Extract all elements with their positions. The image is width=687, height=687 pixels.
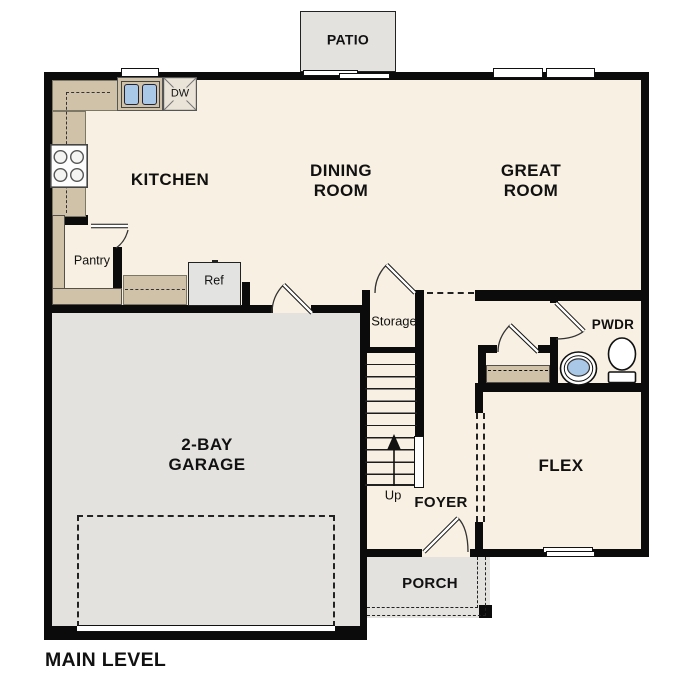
cased-opening-dash: [427, 292, 474, 294]
garage-door: [77, 625, 335, 632]
flex-opening-dash-2: [483, 413, 485, 522]
stairs-up-label: Up: [385, 487, 402, 502]
wall-bottom-south: [360, 549, 649, 557]
sink-basin-left: [124, 84, 139, 105]
room-label-dining-line2: ROOM: [310, 181, 372, 201]
wall-ref-stub: [242, 282, 250, 308]
room-label-dining-line1: DINING: [310, 161, 372, 181]
dishwasher-label: DW: [170, 88, 190, 101]
patio-slider-panel-2: [339, 73, 390, 79]
refrigerator-handle: [212, 260, 218, 263]
great-room-window-1: [493, 68, 543, 78]
room-label-garage-line2: GARAGE: [168, 455, 245, 475]
wall-kitchen-garage: [44, 305, 367, 313]
room-label-pantry: Pantry: [74, 254, 110, 269]
storage-door: [371, 251, 419, 295]
closet-door: [494, 318, 540, 354]
room-label-garage-line1: 2-BAY: [168, 435, 245, 455]
closet-shelf-dash: [488, 370, 548, 371]
stair-handrail: [414, 436, 424, 488]
wall-hall-top: [475, 290, 649, 301]
stairs-up-arrow-icon: [384, 434, 404, 488]
dropzone-counter: [123, 275, 187, 305]
great-room-window-2: [546, 68, 595, 78]
room-label-dining: DINING ROOM: [310, 161, 372, 201]
room-label-powder: PWDR: [592, 317, 634, 333]
room-label-flex: FLEX: [538, 456, 583, 476]
flex-opening-dash-1: [476, 413, 478, 522]
refrigerator-label: Ref: [204, 274, 223, 289]
counter-top-run: [52, 80, 118, 111]
upper-cabinet-dash-h: [66, 92, 110, 93]
toilet-icon: [605, 337, 641, 385]
kitchen-window: [121, 68, 159, 77]
wall-storage-left: [362, 290, 370, 353]
plan-title: MAIN LEVEL: [45, 649, 166, 672]
room-label-kitchen: KITCHEN: [131, 170, 209, 190]
pantry-wall-bottom: [52, 288, 122, 305]
powder-door: [554, 301, 592, 343]
flex-window-2: [546, 551, 595, 557]
vanity-sink-icon: [559, 351, 599, 387]
dropzone-counter-dash: [125, 289, 185, 290]
stove-icon: [50, 144, 88, 188]
floor-plan: DW Ref: [0, 0, 687, 687]
room-label-great-line2: ROOM: [501, 181, 561, 201]
room-label-great-line1: GREAT: [501, 161, 561, 181]
room-label-porch: PORCH: [402, 575, 458, 593]
room-label-patio: PATIO: [327, 32, 369, 49]
room-label-foyer: FOYER: [414, 494, 467, 512]
sink-basin-right: [142, 84, 157, 105]
pantry-door: [87, 220, 131, 252]
garage-door-dashed-outline: [77, 515, 335, 627]
wall-right: [641, 72, 649, 557]
wall-flex-left-lower: [475, 522, 483, 557]
room-label-storage: Storage: [371, 313, 417, 328]
garage-entry-door: [270, 269, 316, 315]
wall-closet-top-right: [538, 345, 558, 353]
closet-shelf: [486, 365, 550, 383]
wall-flex-left-upper: [475, 392, 483, 413]
cased-opening: [425, 289, 475, 301]
room-label-garage: 2-BAY GARAGE: [168, 435, 245, 475]
room-label-great: GREAT ROOM: [501, 161, 561, 201]
